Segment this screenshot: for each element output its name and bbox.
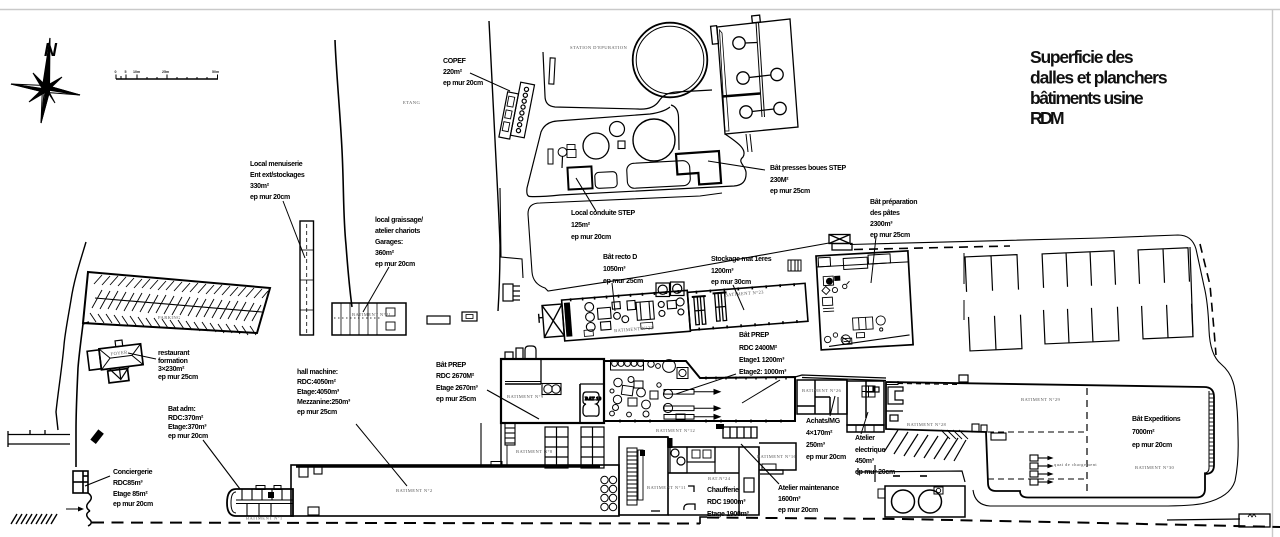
svg-text:BATIMENT N°28: BATIMENT N°28 [907,422,947,427]
svg-text:ep mur 25cm: ep mur 25cm [770,188,810,195]
svg-text:Achats/MG: Achats/MG [806,418,841,425]
svg-text:atelier chariots: atelier chariots [375,228,420,235]
svg-text:Chaufferie: Chaufferie [707,487,739,494]
svg-text:0: 0 [115,70,117,74]
svg-text:hall machine:: hall machine: [297,369,338,376]
svg-text:Bât presses boues STEP: Bât presses boues STEP [770,165,847,172]
svg-text:3×230m²: 3×230m² [158,366,185,373]
svg-text:ep mur 25cm: ep mur 25cm [297,409,337,416]
svg-text:Bât PREP: Bât PREP [739,332,770,339]
svg-text:RDM: RDM [1030,108,1064,128]
svg-text:ep mur 20cm: ep mur 20cm [113,501,153,508]
svg-text:Bât PREP: Bât PREP [436,362,467,369]
svg-text:Etage2: 1000m³: Etage2: 1000m³ [739,369,787,376]
svg-text:BATIMENT N°30: BATIMENT N°30 [1135,465,1175,470]
svg-text:25m: 25m [162,70,169,74]
svg-text:quai de chargement: quai de chargement [1054,462,1097,467]
svg-text:7000m²: 7000m² [1132,429,1155,436]
svg-text:ep mur 20cm: ep mur 20cm [168,433,208,440]
svg-text:N: N [44,40,58,60]
svg-text:ep mur 25cm: ep mur 25cm [436,396,476,403]
svg-text:125m²: 125m² [571,222,591,229]
svg-text:BATIMENT N°29: BATIMENT N°29 [1021,397,1061,402]
svg-text:2300m³: 2300m³ [870,221,893,228]
svg-text:RDC 2400M²: RDC 2400M² [739,345,778,352]
svg-text:ETANG: ETANG [403,100,420,105]
svg-text:RDC 1900m³: RDC 1900m³ [707,499,746,506]
svg-text:Etage 85m²: Etage 85m² [113,491,148,498]
svg-text:Atelier: Atelier [855,435,875,442]
svg-text:RDC85m³: RDC85m³ [113,480,143,487]
svg-text:RDC 2670M²: RDC 2670M² [436,373,475,380]
svg-text:local graissage/: local graissage/ [375,217,423,224]
svg-text:50m: 50m [212,70,219,74]
svg-text:dalles et planchers: dalles et planchers [1030,68,1168,88]
svg-text:4×170m²: 4×170m² [806,430,833,437]
svg-text:electrique: electrique [855,447,885,454]
svg-text:ep mur 25cm: ep mur 25cm [603,278,643,285]
svg-text:1200m³: 1200m³ [711,268,734,275]
svg-text:230M²: 230M² [770,177,789,184]
svg-text:Local menuiserie: Local menuiserie [250,161,303,168]
svg-text:BAT.N°24: BAT.N°24 [708,476,731,481]
svg-text:330m²: 330m² [250,183,270,190]
svg-text:10m: 10m [133,70,140,74]
svg-text:Mezzanine:250m³: Mezzanine:250m³ [297,399,351,406]
svg-text:des pâtes: des pâtes [870,210,900,217]
svg-text:RDC:370m²: RDC:370m² [168,415,204,422]
svg-text:ep mur 20cm: ep mur 20cm [571,234,611,241]
svg-text:BAT.10: BAT.10 [585,396,602,401]
svg-text:BATIMENT N°1: BATIMENT N°1 [246,516,283,521]
svg-text:COPEF: COPEF [443,58,467,65]
svg-text:ep mur 20cm: ep mur 20cm [375,261,415,268]
svg-text:ep mur 25cm: ep mur 25cm [158,374,198,381]
svg-text:ep mur 30cm: ep mur 30cm [711,279,751,286]
svg-text:bâtiments usine: bâtiments usine [1030,88,1144,108]
svg-text:Etage1 1200m³: Etage1 1200m³ [739,357,785,364]
svg-text:BATIMENT N°8: BATIMENT N°8 [516,449,553,454]
svg-text:BATIMENT N°11: BATIMENT N°11 [647,485,686,490]
svg-text:ep mur 20cm: ep mur 20cm [1132,442,1172,449]
svg-text:BATIMENT N°16: BATIMENT N°16 [757,454,797,459]
svg-text:Stockage mat 1eres: Stockage mat 1eres [711,256,772,263]
svg-text:BATIMENT N°21: BATIMENT N°21 [352,312,392,317]
svg-text:Bât recto D: Bât recto D [603,254,637,261]
svg-text:Conciergerie: Conciergerie [113,469,153,476]
svg-text:1600m³: 1600m³ [778,496,801,503]
svg-text:Atelier maintenance: Atelier maintenance [778,485,839,492]
svg-text:Etage:4050m³: Etage:4050m³ [297,389,340,396]
svg-text:Bât préparation: Bât préparation [870,199,917,206]
svg-text:1050m³: 1050m³ [603,266,626,273]
svg-text:restaurant: restaurant [158,350,190,357]
svg-text:RDC:4050m²: RDC:4050m² [297,379,337,386]
svg-text:Etage:370m³: Etage:370m³ [168,424,207,431]
svg-text:Bat adm:: Bat adm: [168,406,196,413]
svg-text:ep mur 20cm: ep mur 20cm [250,194,290,201]
svg-text:STATION D'EPURATION: STATION D'EPURATION [570,45,627,50]
svg-text:Bât Expeditions: Bât Expeditions [1132,416,1181,423]
svg-text:BATIMENT N°9: BATIMENT N°9 [507,394,544,399]
svg-text:ep mur 20cm: ep mur 20cm [806,454,846,461]
svg-text:ep mur 25cm: ep mur 25cm [870,232,910,239]
svg-text:Local conduite STEP: Local conduite STEP [571,210,636,217]
svg-text:Etage 2670m³: Etage 2670m³ [436,385,479,392]
svg-text:ep mur 20cm: ep mur 20cm [778,507,818,514]
svg-text:formation: formation [158,358,188,365]
svg-text:Superficie des: Superficie des [1030,47,1134,67]
svg-text:250m³: 250m³ [806,442,826,449]
svg-text:5: 5 [125,70,127,74]
svg-text:BATIMENT N°26: BATIMENT N°26 [802,388,842,393]
svg-text:Garages:: Garages: [375,239,403,246]
svg-text:450m³: 450m³ [855,458,875,465]
svg-text:BATIMENT N°12: BATIMENT N°12 [656,428,696,433]
svg-text:220m²: 220m² [443,69,463,76]
svg-text:Ent ext/stockages: Ent ext/stockages [250,172,305,179]
svg-text:BATIMENT N°2: BATIMENT N°2 [396,488,433,493]
svg-text:PARKING: PARKING [158,315,181,320]
svg-text:ep mur 20cm: ep mur 20cm [443,80,483,87]
svg-text:360m²: 360m² [375,250,395,257]
